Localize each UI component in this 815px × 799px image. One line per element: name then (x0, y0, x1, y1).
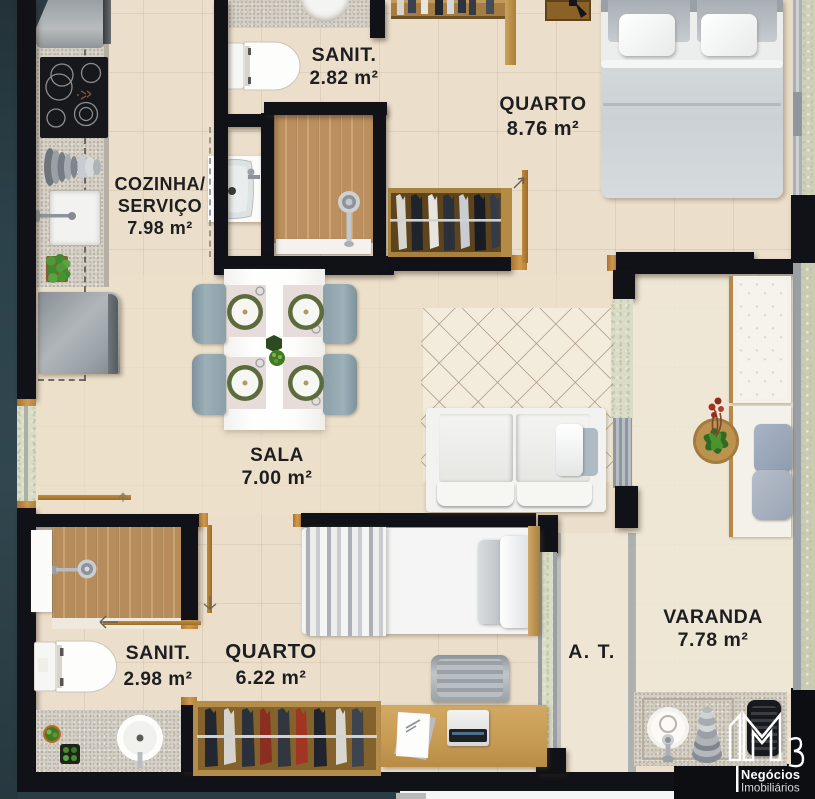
svg-text:Negócios: Negócios (741, 767, 800, 782)
svg-text:Imobiliários: Imobiliários (741, 782, 800, 795)
